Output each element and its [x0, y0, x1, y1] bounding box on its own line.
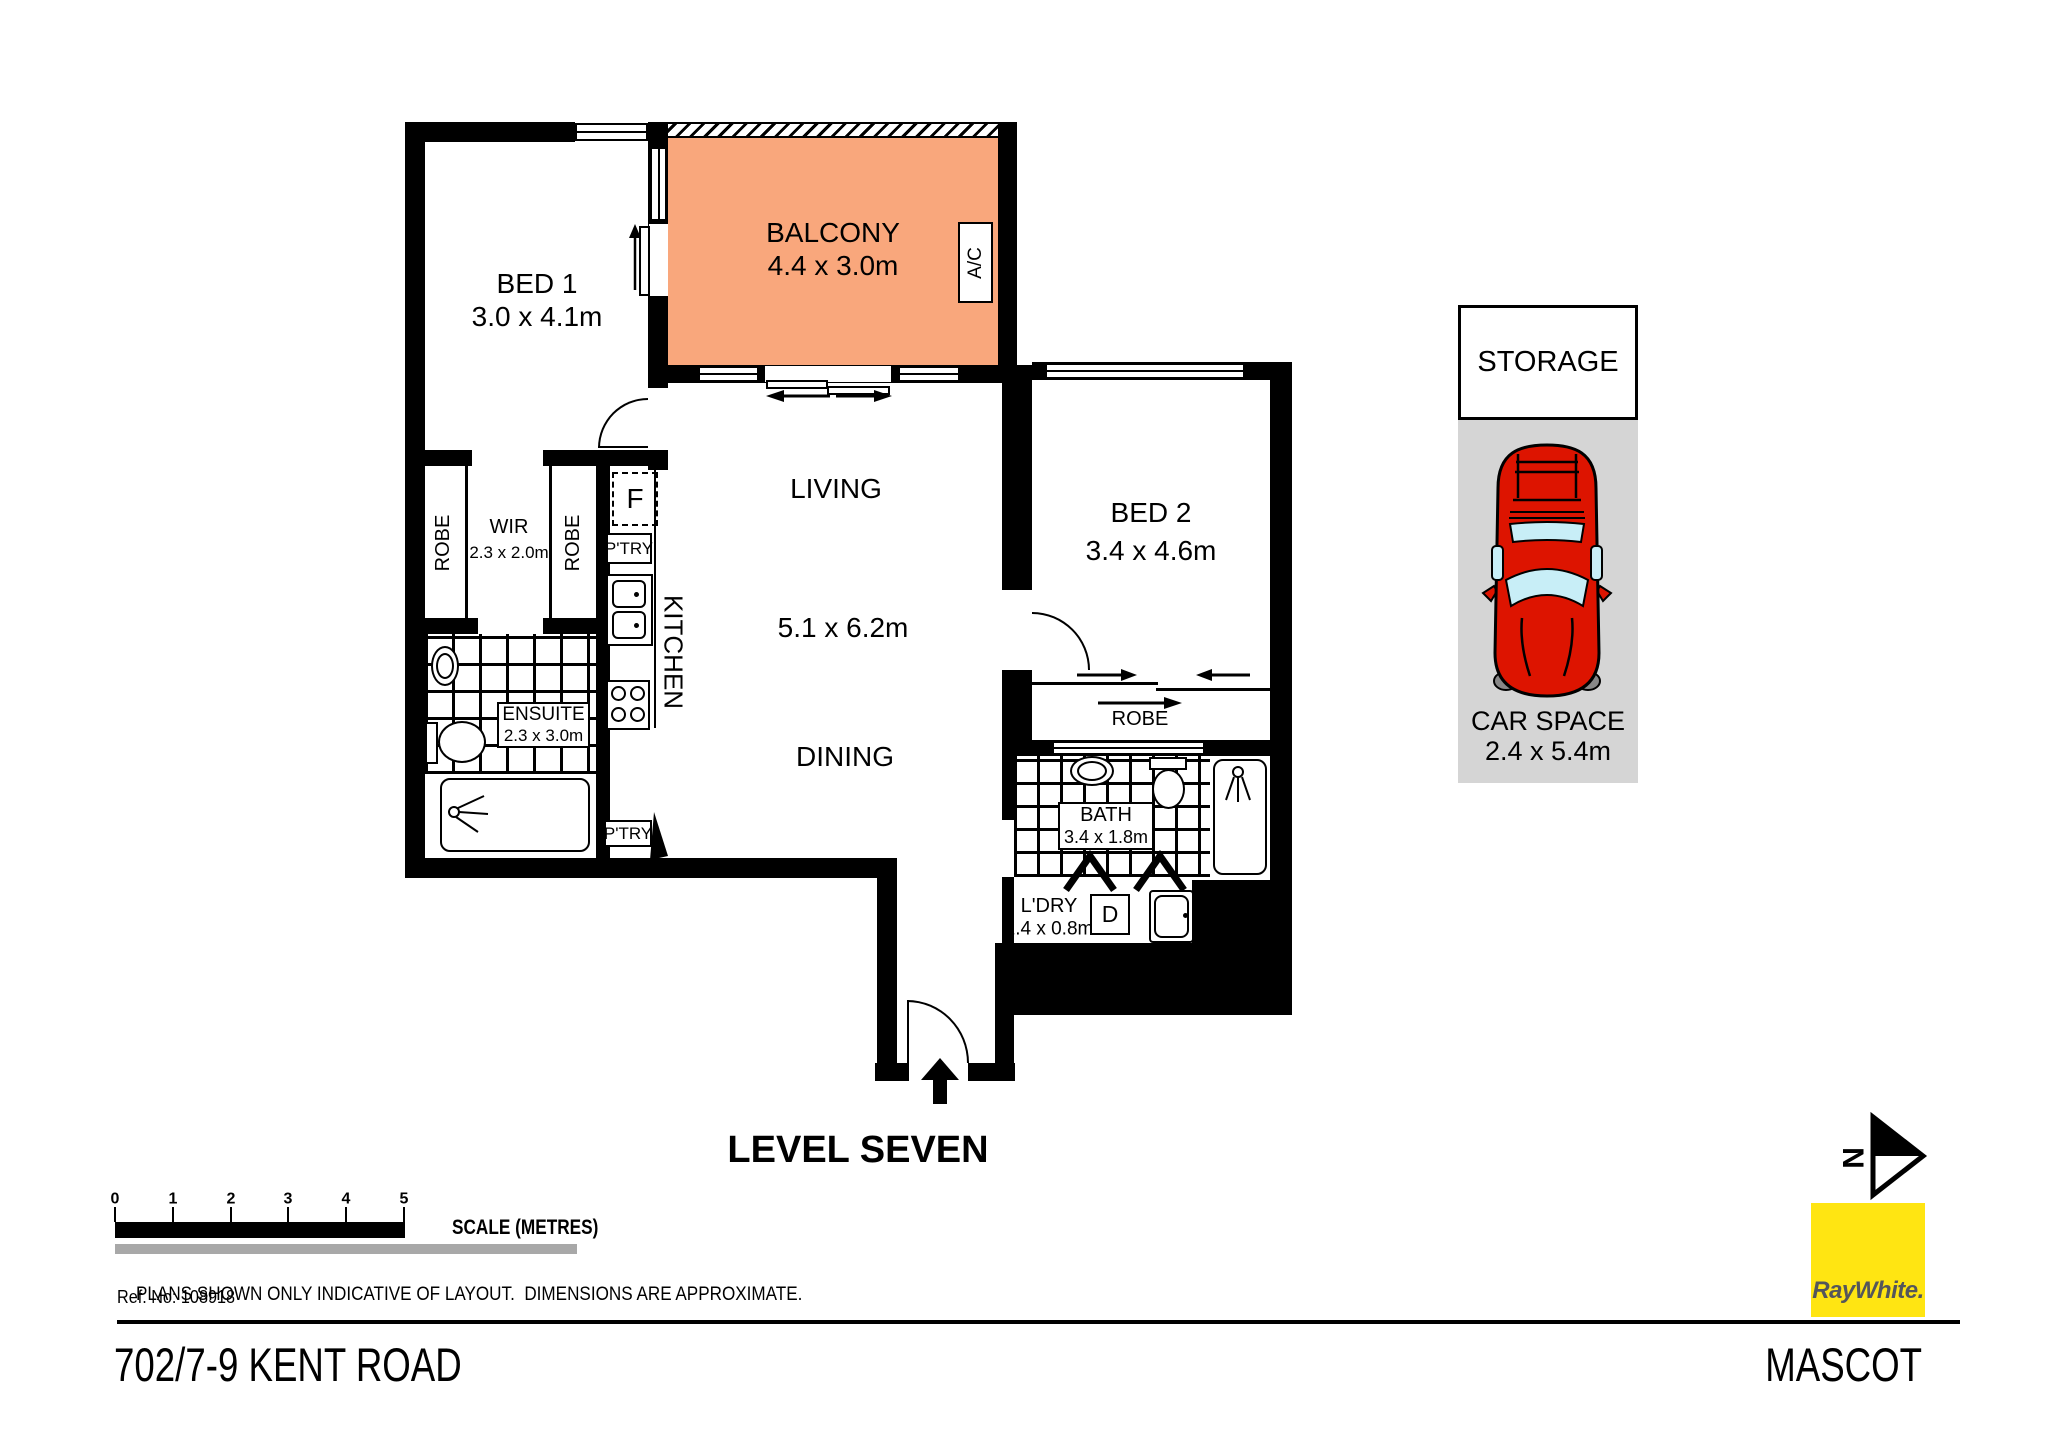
window-bed1-side — [650, 147, 667, 221]
opening-bed1-slider — [649, 224, 668, 296]
car-icon — [1482, 438, 1612, 702]
sink-tap-1 — [634, 592, 639, 597]
wall-entry-stub-left — [875, 1063, 909, 1081]
window-bed1-top — [575, 123, 648, 141]
cooktop-burner-1 — [611, 686, 626, 701]
scale-tickmark-4 — [345, 1207, 347, 1222]
scale-label: SCALE (METRES) — [452, 1216, 598, 1240]
dryer-label: D — [1102, 901, 1119, 927]
level-label: LEVEL SEVEN — [727, 1128, 988, 1174]
bed2-dims: 3.4 x 4.6m — [1086, 534, 1217, 568]
opening-bed1-door — [647, 388, 669, 450]
wall-wir-bottom-right — [543, 618, 596, 634]
wall-entry-left — [877, 878, 897, 1081]
wall-left — [405, 122, 425, 878]
storage-box: STORAGE — [1458, 305, 1638, 420]
balcony-dims: 4.4 x 3.0m — [768, 249, 899, 283]
ensuite-floor-edge — [425, 772, 596, 774]
floorplan-page: ENSUITE 2.3 x 3.0m F P'TRY P'TRY BATH 3.… — [0, 0, 2048, 1448]
pantry-upper-label: P'TRY — [605, 539, 653, 559]
scale-tickmark-2 — [230, 1207, 232, 1222]
wall-bed1-bottom-left — [405, 450, 472, 466]
scale-tickmark-0 — [114, 1207, 116, 1222]
north-letter: N — [1834, 1147, 1870, 1169]
bath-toilet-bowl-icon — [1152, 769, 1185, 809]
bed1-slider-arrow-icon — [627, 224, 643, 296]
pantry-lower-label: P'TRY — [604, 824, 652, 844]
scale-tick-2: 2 — [227, 1189, 236, 1208]
scale-tickmark-3 — [287, 1207, 289, 1222]
wall-living-bed2-lower — [1002, 670, 1032, 745]
robe-right-label: ROBE — [561, 515, 585, 572]
wir-label: WIR — [490, 515, 529, 539]
wall-living-bed2-upper — [1002, 365, 1032, 590]
door-arc-entry — [907, 1000, 969, 1063]
kitchen-sink-bowl-1 — [612, 580, 646, 608]
bath-label-box: BATH 3.4 x 1.8m — [1058, 802, 1154, 850]
wall-bottom-band — [1002, 943, 1292, 1015]
brand-logo: RayWhite. — [1811, 1203, 1925, 1317]
kitchen-counter-edge — [654, 466, 656, 728]
footer-divider — [117, 1320, 1960, 1324]
scale-tickmark-5 — [403, 1207, 405, 1222]
kitchen-label: KITCHEN — [657, 595, 688, 709]
door-arc-bed2 — [1032, 612, 1090, 670]
suburb-title: MASCOT — [1765, 1337, 1922, 1392]
aircon-box: A/C — [958, 222, 993, 303]
aircon-label: A/C — [965, 247, 987, 279]
sink-tap-2 — [634, 623, 639, 628]
scale-tick-0: 0 — [111, 1189, 120, 1208]
bifold-doors-icon — [1062, 850, 1188, 894]
window-balcony-right — [898, 366, 960, 382]
scale-tick-3: 3 — [284, 1189, 293, 1208]
cooktop-burner-3 — [611, 707, 626, 722]
scale-tick-5: 5 — [400, 1189, 409, 1208]
washer-knob-icon — [1183, 913, 1188, 918]
north-arrow-icon — [1869, 1113, 1927, 1199]
bath-basin-inner-icon — [1077, 761, 1107, 781]
wall-bath-left-upper — [1002, 745, 1014, 820]
scale-tick-4: 4 — [342, 1189, 351, 1208]
dining-label: DINING — [796, 740, 894, 774]
ref-number: Ref. No: 108918 — [117, 1287, 235, 1308]
bath-shower-icon — [1222, 764, 1254, 808]
wall-right — [1270, 362, 1292, 1015]
laundry-dims: 2.4 x 0.8m — [1005, 919, 1094, 942]
door-arc-bed1 — [598, 398, 648, 448]
ensuite-label: ENSUITE — [502, 704, 584, 726]
carspace-dims: 2.4 x 5.4m — [1485, 735, 1611, 767]
pantry-upper-box: P'TRY — [606, 533, 652, 564]
bath-dims: 3.4 x 1.8m — [1064, 827, 1148, 848]
kitchen-sink-bowl-2 — [612, 611, 646, 639]
dryer-box: D — [1090, 894, 1130, 935]
robe-bed2-label: ROBE — [1112, 707, 1169, 731]
entry-arrow-icon — [921, 1058, 959, 1104]
cooktop-burner-2 — [630, 686, 645, 701]
wall-entry-stub-right — [968, 1063, 1015, 1081]
wall-robe-divider-1 — [465, 466, 468, 618]
window-balcony-left — [698, 366, 759, 382]
brand-logo-text: RayWhite. — [1812, 1277, 1924, 1305]
balcony-slider-arrows-icon — [766, 388, 892, 404]
carspace-label: CAR SPACE — [1471, 705, 1625, 737]
scale-tick-1: 1 — [169, 1189, 178, 1208]
scale-bar-black — [115, 1222, 405, 1238]
wall-kitchen-top — [543, 450, 668, 466]
bath-label: BATH — [1080, 804, 1132, 827]
ensuite-toilet-tank-icon — [425, 722, 438, 764]
fridge-box: F — [612, 472, 658, 526]
bed2-slider-arrows-icon — [1035, 666, 1270, 684]
ensuite-shower-icon — [444, 788, 496, 836]
balcony-label: BALCONY — [766, 216, 900, 250]
window-bed2-top — [1045, 363, 1245, 379]
wall-wir-bottom-left — [405, 618, 478, 634]
storage-label: STORAGE — [1477, 346, 1618, 379]
wall-ensuite-kitchen — [596, 466, 610, 878]
wall-bed1-top — [405, 122, 575, 142]
ensuite-label-box: ENSUITE 2.3 x 3.0m — [497, 702, 590, 748]
ensuite-toilet-bowl-icon — [438, 721, 486, 763]
scale-bar-gray — [115, 1244, 577, 1254]
ensuite-basin-inner-icon — [436, 653, 454, 679]
bed1-dims: 3.0 x 4.1m — [472, 300, 603, 334]
ensuite-dims: 2.3 x 3.0m — [504, 726, 583, 746]
wall-robe-divider-2 — [549, 466, 552, 618]
pantry-lower-box: P'TRY — [604, 820, 652, 847]
fridge-label: F — [626, 483, 643, 515]
address-title: 702/7-9 KENT ROAD — [114, 1337, 462, 1392]
wall-entry-right — [995, 943, 1014, 1081]
scale-tickmark-1 — [172, 1207, 174, 1222]
bed2-label: BED 2 — [1111, 496, 1192, 530]
living-label: LIVING — [790, 472, 882, 506]
pantry-door-wedge-icon — [646, 810, 670, 862]
balcony-railing — [661, 122, 1001, 138]
bed1-label: BED 1 — [497, 267, 578, 301]
robe-left-label: ROBE — [431, 515, 455, 572]
track-robe2-slider — [1052, 741, 1205, 755]
living-dining-dims: 5.1 x 6.2m — [778, 611, 909, 645]
laundry-label: L'DRY — [1021, 894, 1078, 918]
robe2-track-2 — [1156, 688, 1272, 691]
wall-balcony-right — [998, 122, 1017, 365]
cooktop-burner-4 — [630, 707, 645, 722]
wir-dims: 2.3 x 2.0m — [469, 543, 548, 563]
wall-laundry-right-mass — [1192, 880, 1270, 944]
